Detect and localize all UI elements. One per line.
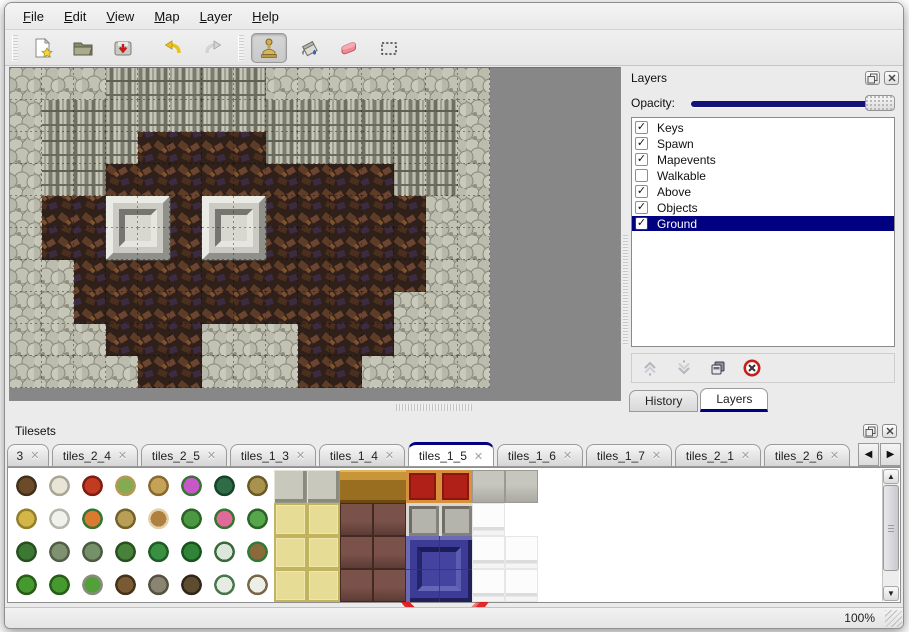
tileset-tab-tiles_1_5[interactable]: tiles_1_5✕ <box>408 442 494 466</box>
close-icon <box>887 73 897 83</box>
tileset-tile-tree-dead-brown[interactable] <box>109 569 142 602</box>
toolbar-drag-handle-2[interactable] <box>238 35 244 61</box>
opacity-label: Opacity: <box>631 96 687 110</box>
close-panel-button[interactable] <box>884 71 899 85</box>
rect-select-button[interactable] <box>371 33 407 63</box>
layers-dock: Layers Opacity: ✓Keys✓Spawn✓MapeventsWal… <box>625 65 903 413</box>
duplicate-layer-button[interactable] <box>706 356 730 380</box>
tileset-tab-label: tiles_2_6 <box>775 449 823 463</box>
opacity-slider-thumb[interactable] <box>865 95 895 111</box>
tileset-tile-carpet-red[interactable] <box>439 470 472 503</box>
fill-bucket-button[interactable] <box>291 33 327 63</box>
tileset-tab-tiles_2_5[interactable]: tiles_2_5✕ <box>141 444 227 466</box>
close-tilesets-button[interactable] <box>882 424 897 438</box>
layer-list: ✓Keys✓Spawn✓MapeventsWalkable✓Above✓Obje… <box>631 117 895 347</box>
tileset-tile-cloth-white[interactable] <box>505 569 538 602</box>
tileset-tab-label: tiles_2_5 <box>152 449 200 463</box>
tileset-tile-flowers-orange[interactable] <box>76 503 109 536</box>
horizontal-splitter[interactable] <box>396 404 472 411</box>
tileset-tile-blank[interactable] <box>505 503 538 536</box>
chevron-up-icon <box>640 358 660 378</box>
undo-icon <box>161 36 185 60</box>
layer-name: Spawn <box>657 137 694 151</box>
tileset-grid[interactable]: ▲ ▼ <box>7 467 901 603</box>
tileset-tile-tatami[interactable] <box>307 569 340 602</box>
menu-help[interactable]: Help <box>242 6 289 27</box>
tileset-tile-snow-mound[interactable] <box>43 503 76 536</box>
tileset-tile-palm-green[interactable] <box>142 536 175 569</box>
menu-file[interactable]: File <box>13 6 54 27</box>
tileset-tile-hay-mound[interactable] <box>10 503 43 536</box>
tileset-tile-dry-grass[interactable] <box>109 503 142 536</box>
layer-row-above[interactable]: ✓Above <box>632 184 894 199</box>
chevron-down-icon <box>674 358 694 378</box>
tab-close-icon[interactable]: ✕ <box>474 450 483 463</box>
float-tilesets-button[interactable] <box>863 424 878 438</box>
tileset-tab-tiles_2_1[interactable]: tiles_2_1✕ <box>675 444 761 466</box>
tileset-tab-label: 3 <box>17 449 24 463</box>
tileset-tile-table-brown[interactable] <box>373 470 406 503</box>
layer-visibility-checkbox[interactable]: ✓ <box>635 217 648 230</box>
selected-tile-blue-block[interactable] <box>406 536 472 602</box>
float-icon <box>867 73 878 84</box>
map-canvas[interactable] <box>10 68 490 388</box>
tileset-tile-tree-bare[interactable] <box>10 470 43 503</box>
close-icon <box>885 426 895 436</box>
layer-row-keys[interactable]: ✓Keys <box>632 120 894 135</box>
tileset-tile-stone-block[interactable] <box>439 503 472 536</box>
tileset-tile-tree-dead-gray[interactable] <box>142 569 175 602</box>
tileset-tabs-container: 3✕tiles_2_4✕tiles_2_5✕tiles_1_3✕tiles_1_… <box>7 442 854 466</box>
tileset-tile-fern-dark[interactable] <box>208 470 241 503</box>
tileset-tab-tiles_2_4[interactable]: tiles_2_4✕ <box>52 444 138 466</box>
layer-visibility-checkbox[interactable]: ✓ <box>635 137 648 150</box>
tileset-tile-stone-block[interactable] <box>406 503 439 536</box>
menu-layer[interactable]: Layer <box>190 6 243 27</box>
tileset-tile-cloth-white[interactable] <box>505 536 538 569</box>
tileset-tile-tree-white[interactable] <box>43 470 76 503</box>
layer-visibility-checkbox[interactable]: ✓ <box>635 153 648 166</box>
tileset-tab-tiles_2_6[interactable]: tiles_2_6✕ <box>764 444 850 466</box>
tileset-tab-tiles_1_7[interactable]: tiles_1_7✕ <box>586 444 672 466</box>
tileset-tab-label: tiles_1_7 <box>597 449 645 463</box>
window-resize-grip[interactable] <box>885 610 902 627</box>
tileset-tab-tiles_1_4[interactable]: tiles_1_4✕ <box>319 444 405 466</box>
tileset-tile-palm-trunk[interactable] <box>241 536 274 569</box>
tileset-tile-bush-gray2[interactable] <box>76 536 109 569</box>
menu-edit[interactable]: Edit <box>54 6 96 27</box>
tilesets-panel: Tilesets 3✕tiles_2_4✕tiles_2_5✕tiles_1_3… <box>5 419 903 609</box>
fill-bucket-icon <box>297 36 321 60</box>
tileset-tab-label: tiles_2_4 <box>63 449 111 463</box>
tileset-tile-flowers-pink[interactable] <box>175 470 208 503</box>
tileset-tile-table-brown[interactable] <box>340 470 373 503</box>
tileset-tile-stone-gray[interactable] <box>472 470 505 503</box>
tileset-tab-tiles_1_3[interactable]: tiles_1_3✕ <box>230 444 316 466</box>
tileset-tile-tree-dead-dark[interactable] <box>175 569 208 602</box>
tileset-tile-flowers-rose[interactable] <box>208 503 241 536</box>
tab-close-icon[interactable]: ✕ <box>207 449 216 462</box>
tab-close-icon[interactable]: ✕ <box>30 449 39 462</box>
float-panel-button[interactable] <box>865 71 880 85</box>
tab-close-icon[interactable]: ✕ <box>385 449 394 462</box>
tileset-tile-pine-snowy[interactable] <box>208 536 241 569</box>
tileset-tab-label: tiles_1_5 <box>419 449 467 463</box>
delete-icon <box>742 358 762 378</box>
layer-visibility-checkbox[interactable]: ✓ <box>635 121 648 134</box>
layer-visibility-checkbox[interactable] <box>635 169 648 182</box>
toolbar <box>5 30 903 66</box>
save-button[interactable] <box>105 33 141 63</box>
tileset-tile-sprig-tiny[interactable] <box>109 536 142 569</box>
tileset-scrollbar[interactable]: ▲ ▼ <box>882 469 899 601</box>
new-file-button[interactable] <box>25 33 61 63</box>
tileset-tile-cobble[interactable] <box>307 470 340 503</box>
layer-name: Keys <box>657 121 684 135</box>
menu-bar: FileEditViewMapLayerHelp <box>5 3 903 30</box>
open-folder-icon <box>71 36 95 60</box>
layer-visibility-checkbox[interactable]: ✓ <box>635 201 648 214</box>
tab-close-icon[interactable]: ✕ <box>563 449 572 462</box>
move-layer-down-button[interactable] <box>672 356 696 380</box>
dock-tab-bar: History Layers <box>629 387 903 412</box>
stamp-brush-icon <box>257 36 281 60</box>
tileset-tile-leaves-scatter[interactable] <box>142 503 175 536</box>
tab-close-icon[interactable]: ✕ <box>830 449 839 462</box>
scroll-up-button[interactable]: ▲ <box>883 469 899 484</box>
tileset-tab-tiles_1_6[interactable]: tiles_1_6✕ <box>497 444 583 466</box>
tileset-tile-chest-dark[interactable] <box>340 536 373 569</box>
tileset-tile-chest-dark[interactable] <box>373 569 406 602</box>
scrollbar-thumb[interactable] <box>883 485 899 571</box>
tileset-tile-chest-dark[interactable] <box>373 536 406 569</box>
tileset-tile-twig-plant[interactable] <box>241 470 274 503</box>
tileset-tab-label: tiles_1_6 <box>508 449 556 463</box>
layer-name: Walkable <box>657 169 706 183</box>
toolbar-drag-handle[interactable] <box>12 35 18 61</box>
tileset-tile-tatami[interactable] <box>307 503 340 536</box>
undo-button[interactable] <box>155 33 191 63</box>
layer-name: Objects <box>657 201 698 215</box>
tileset-tile-cloth-white[interactable] <box>472 569 505 602</box>
new-file-icon <box>31 36 55 60</box>
float-icon <box>865 426 876 437</box>
tileset-tile-lilypad[interactable] <box>175 503 208 536</box>
scroll-down-button[interactable]: ▼ <box>883 586 899 601</box>
eraser-button[interactable] <box>331 33 367 63</box>
open-folder-button[interactable] <box>65 33 101 63</box>
map-grid-overlay <box>10 68 490 388</box>
tileset-tile-flower-red[interactable] <box>76 470 109 503</box>
map-view-panel <box>9 67 621 401</box>
tileset-tile-chest-dark[interactable] <box>373 503 406 536</box>
tilesets-panel-title: Tilesets <box>15 424 859 438</box>
tab-close-icon[interactable]: ✕ <box>296 449 305 462</box>
tileset-tile-conifer-green2[interactable] <box>43 569 76 602</box>
tab-layers[interactable]: Layers <box>700 388 768 412</box>
app-window: FileEditViewMapLayerHelp <box>4 2 904 629</box>
tileset-tab-label: tiles_1_4 <box>330 449 378 463</box>
layer-name: Mapevents <box>657 153 716 167</box>
scroll-tabs-left-button[interactable]: ◀ <box>858 443 879 466</box>
tileset-tile-tatami[interactable] <box>274 569 307 602</box>
layer-visibility-checkbox[interactable]: ✓ <box>635 185 648 198</box>
layer-name: Ground <box>657 217 697 231</box>
layer-row-spawn[interactable]: ✓Spawn <box>632 136 894 151</box>
tab-history[interactable]: History <box>629 390 698 412</box>
opacity-slider-track <box>691 101 891 107</box>
tileset-tile-cobble[interactable] <box>274 470 307 503</box>
tileset-tile-stump-green[interactable] <box>109 470 142 503</box>
layer-row-ground[interactable]: ✓Ground <box>632 216 894 231</box>
move-layer-up-button[interactable] <box>638 356 662 380</box>
tileset-tile-pine-snow-tall[interactable] <box>208 569 241 602</box>
tileset-tile-cloth-white[interactable] <box>472 503 505 536</box>
rect-select-icon <box>377 36 401 60</box>
layers-panel-title: Layers <box>631 71 861 85</box>
eraser-icon <box>337 36 361 60</box>
tileset-tile-tatami[interactable] <box>274 503 307 536</box>
menu-map[interactable]: Map <box>144 6 189 27</box>
layer-row-walkable[interactable]: Walkable <box>632 168 894 183</box>
tileset-tile-conifer-rock[interactable] <box>76 569 109 602</box>
tileset-tile-palm-green2[interactable] <box>175 536 208 569</box>
layer-buttons-bar <box>631 353 895 383</box>
tileset-tile-tree-bare-snow[interactable] <box>241 569 274 602</box>
redo-icon <box>201 36 225 60</box>
layer-row-objects[interactable]: ✓Objects <box>632 200 894 215</box>
tileset-tab-3[interactable]: 3✕ <box>7 444 49 466</box>
tileset-tile-conifer-green[interactable] <box>10 569 43 602</box>
scroll-tabs-right-button[interactable]: ▶ <box>880 443 901 466</box>
tileset-tile-chest-dark[interactable] <box>340 503 373 536</box>
tileset-tile-tatami[interactable] <box>307 536 340 569</box>
tileset-tabbar: 3✕tiles_2_4✕tiles_2_5✕tiles_1_3✕tiles_1_… <box>7 441 901 467</box>
tileset-tile-cloth-white[interactable] <box>472 536 505 569</box>
status-bar: 100% <box>5 607 903 628</box>
screenshot-stage: FileEditViewMapLayerHelp <box>0 0 909 632</box>
tileset-tile-trunk-tan[interactable] <box>142 470 175 503</box>
delete-layer-button[interactable] <box>740 356 764 380</box>
layer-row-mapevents[interactable]: ✓Mapevents <box>632 152 894 167</box>
zoom-level: 100% <box>844 611 875 625</box>
tileset-tile-chest-dark[interactable] <box>340 569 373 602</box>
stamp-brush-button[interactable] <box>251 33 287 63</box>
menu-view[interactable]: View <box>96 6 144 27</box>
tileset-tile-sprigs-small[interactable] <box>10 536 43 569</box>
tileset-tile-carpet-red[interactable] <box>406 470 439 503</box>
tileset-tile-stone-gray[interactable] <box>505 470 538 503</box>
opacity-slider[interactable] <box>687 94 895 112</box>
tileset-tile-lilypad-cut[interactable] <box>241 503 274 536</box>
save-icon <box>111 36 135 60</box>
redo-button[interactable] <box>195 33 231 63</box>
layer-name: Above <box>657 185 691 199</box>
tab-close-icon[interactable]: ✕ <box>118 449 127 462</box>
tileset-tile-bush-gray[interactable] <box>43 536 76 569</box>
tab-close-icon[interactable]: ✕ <box>741 449 750 462</box>
tileset-tile-tatami[interactable] <box>274 536 307 569</box>
tab-close-icon[interactable]: ✕ <box>652 449 661 462</box>
tileset-tab-label: tiles_2_1 <box>686 449 734 463</box>
duplicate-icon <box>708 358 728 378</box>
tileset-tab-label: tiles_1_3 <box>241 449 289 463</box>
tile-selection-grid <box>406 536 472 602</box>
